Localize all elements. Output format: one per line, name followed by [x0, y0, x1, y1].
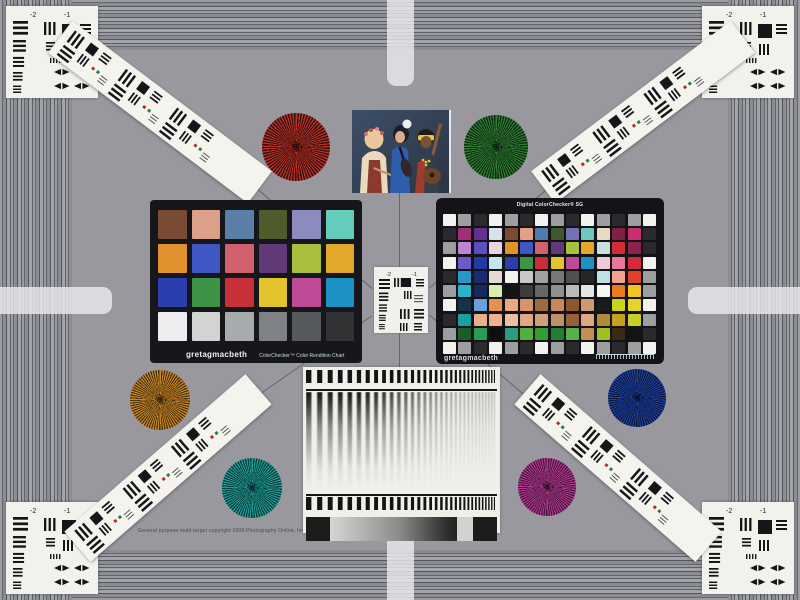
color-patch — [443, 285, 456, 297]
color-patch — [597, 257, 610, 269]
color-patch — [158, 210, 187, 239]
color-patch — [628, 242, 641, 254]
svg-text:-2: -2 — [30, 12, 36, 19]
color-patch — [292, 278, 321, 307]
svg-text:-1: -1 — [760, 508, 766, 515]
color-patch — [192, 278, 221, 307]
color-patch — [643, 242, 656, 254]
siemens-star-green — [464, 115, 528, 179]
colorchecker-classic-grid — [158, 210, 354, 341]
color-patch — [489, 257, 502, 269]
svg-text:-2: -2 — [386, 272, 391, 278]
color-patch — [566, 285, 579, 297]
color-patch — [566, 314, 579, 326]
siemens-star-magenta — [518, 458, 576, 516]
color-patch — [520, 299, 533, 311]
color-patch — [612, 271, 625, 283]
color-patch — [192, 312, 221, 341]
color-patch — [643, 314, 656, 326]
color-patch — [551, 299, 564, 311]
color-patch — [474, 299, 487, 311]
color-patch — [474, 257, 487, 269]
color-patch — [628, 271, 641, 283]
color-patch — [443, 242, 456, 254]
svg-text:-1: -1 — [64, 508, 70, 515]
connector-line-vertical-bottom — [399, 333, 400, 367]
color-patch — [505, 228, 518, 240]
color-patch — [259, 278, 288, 307]
color-patch — [581, 299, 594, 311]
color-patch — [566, 228, 579, 240]
color-patch — [259, 210, 288, 239]
sg-ruler-scale — [596, 354, 654, 359]
color-patch — [225, 312, 254, 341]
color-patch — [566, 271, 579, 283]
color-patch — [643, 299, 656, 311]
color-patch — [443, 328, 456, 340]
color-patch — [643, 214, 656, 226]
color-patch — [505, 214, 518, 226]
color-patch — [158, 278, 187, 307]
sweep-row-top — [306, 370, 495, 383]
black-end-patch — [306, 517, 330, 541]
color-patch — [458, 328, 471, 340]
color-patch — [535, 228, 548, 240]
color-patch — [520, 228, 533, 240]
color-patch — [612, 328, 625, 340]
sweep-fade-down — [306, 392, 497, 493]
color-patch — [458, 228, 471, 240]
color-patch — [612, 299, 625, 311]
classic-brand-text: gretagmacbeth — [186, 350, 247, 359]
color-patch — [643, 271, 656, 283]
color-patch — [643, 328, 656, 340]
color-patch — [566, 242, 579, 254]
color-patch — [566, 214, 579, 226]
color-patch — [489, 328, 502, 340]
colorchecker-classic-chart: gretagmacbeth ColorChecker™ Color Rendit… — [150, 200, 362, 363]
portrait-photo — [352, 110, 451, 193]
color-patch — [612, 314, 625, 326]
color-patch — [597, 271, 610, 283]
color-patch — [489, 342, 502, 354]
color-patch — [612, 285, 625, 297]
color-patch — [597, 228, 610, 240]
colorchecker-sg-grid — [443, 214, 656, 354]
color-patch — [566, 342, 579, 354]
color-patch — [628, 285, 641, 297]
color-patch — [612, 242, 625, 254]
color-patch — [581, 242, 594, 254]
color-patch — [474, 214, 487, 226]
sweep-row-bottom — [306, 497, 495, 510]
color-patch — [192, 210, 221, 239]
color-patch — [597, 285, 610, 297]
color-patch — [551, 242, 564, 254]
siemens-star-amber — [130, 370, 190, 430]
color-patch — [535, 242, 548, 254]
color-patch — [292, 244, 321, 273]
test-chart-stage: -2-1 -2-1 -2-1 -2-1 — [0, 0, 800, 600]
sweep-fade-area — [306, 392, 497, 493]
color-patch — [581, 285, 594, 297]
color-patch — [489, 271, 502, 283]
color-patch — [158, 312, 187, 341]
color-patch — [225, 244, 254, 273]
color-patch — [535, 328, 548, 340]
svg-text:-2: -2 — [726, 508, 732, 515]
color-patch — [566, 299, 579, 311]
color-patch — [326, 278, 355, 307]
color-patch — [643, 342, 656, 354]
grayscale-gradient-strip — [306, 517, 497, 541]
color-patch — [628, 257, 641, 269]
color-patch — [474, 271, 487, 283]
color-patch — [535, 299, 548, 311]
color-patch — [628, 214, 641, 226]
color-patch — [443, 314, 456, 326]
color-patch — [458, 342, 471, 354]
color-patch — [551, 328, 564, 340]
color-patch — [505, 271, 518, 283]
color-patch — [581, 342, 594, 354]
color-patch — [581, 314, 594, 326]
color-patch — [192, 244, 221, 273]
color-patch — [520, 257, 533, 269]
color-patch — [489, 242, 502, 254]
color-patch — [628, 328, 641, 340]
color-patch — [505, 328, 518, 340]
edge-marker-top — [387, 0, 414, 86]
color-patch — [520, 214, 533, 226]
color-patch — [643, 228, 656, 240]
color-patch — [225, 210, 254, 239]
color-patch — [581, 271, 594, 283]
edge-marker-left — [0, 287, 112, 314]
color-patch — [292, 312, 321, 341]
color-patch — [443, 299, 456, 311]
color-patch — [326, 244, 355, 273]
color-patch — [535, 314, 548, 326]
color-patch — [551, 271, 564, 283]
colorchecker-sg-chart: Digital ColorChecker® SG gretagmacbeth — [436, 198, 664, 364]
svg-text:-1: -1 — [412, 272, 417, 278]
color-patch — [292, 210, 321, 239]
copyright-text: General purpose multi-target copyright 2… — [138, 528, 306, 534]
color-patch — [489, 314, 502, 326]
gray-ramp — [330, 517, 457, 541]
color-patch — [566, 257, 579, 269]
color-patch — [225, 278, 254, 307]
color-patch — [520, 314, 533, 326]
center-usaf-target: -2-1 — [374, 267, 428, 333]
color-patch — [489, 285, 502, 297]
color-patch — [612, 257, 625, 269]
color-patch — [566, 328, 579, 340]
color-patch — [597, 242, 610, 254]
color-patch — [597, 214, 610, 226]
color-patch — [326, 312, 355, 341]
sg-title-text: Digital ColorChecker® SG — [436, 202, 664, 208]
color-patch — [597, 299, 610, 311]
color-patch — [612, 214, 625, 226]
color-patch — [597, 328, 610, 340]
color-patch — [535, 342, 548, 354]
color-patch — [597, 342, 610, 354]
color-patch — [643, 257, 656, 269]
color-patch — [612, 342, 625, 354]
color-patch — [505, 242, 518, 254]
color-patch — [474, 285, 487, 297]
color-patch — [643, 285, 656, 297]
color-patch — [520, 242, 533, 254]
color-patch — [505, 314, 518, 326]
edge-marker-right — [688, 287, 800, 314]
color-patch — [551, 285, 564, 297]
color-patch — [628, 342, 641, 354]
color-patch — [489, 228, 502, 240]
color-patch — [259, 244, 288, 273]
color-patch — [158, 244, 187, 273]
color-patch — [581, 257, 594, 269]
panel-divider-line — [306, 494, 497, 496]
color-patch — [628, 299, 641, 311]
siemens-star-blue — [608, 369, 666, 427]
color-patch — [535, 285, 548, 297]
color-patch — [443, 228, 456, 240]
color-patch — [259, 312, 288, 341]
color-patch — [474, 342, 487, 354]
color-patch — [551, 257, 564, 269]
corner-usaf-target-bottom-right: -2-1 — [702, 502, 794, 594]
colorchecker-classic-label: gretagmacbeth ColorChecker™ Color Rendit… — [186, 350, 344, 359]
light-patch — [457, 517, 473, 541]
color-patch — [581, 214, 594, 226]
color-patch — [535, 257, 548, 269]
color-patch — [458, 285, 471, 297]
color-patch — [535, 214, 548, 226]
color-patch — [520, 328, 533, 340]
color-patch — [551, 214, 564, 226]
svg-text:-2: -2 — [726, 12, 732, 19]
color-patch — [551, 342, 564, 354]
color-patch — [551, 314, 564, 326]
color-patch — [520, 285, 533, 297]
color-patch — [612, 228, 625, 240]
color-patch — [326, 210, 355, 239]
color-patch — [505, 257, 518, 269]
black-end-patch — [473, 517, 497, 541]
color-patch — [551, 228, 564, 240]
color-patch — [581, 228, 594, 240]
classic-title-text: ColorChecker™ Color Rendition Chart — [259, 353, 344, 359]
color-patch — [443, 214, 456, 226]
color-patch — [489, 299, 502, 311]
color-patch — [458, 257, 471, 269]
siemens-star-teal — [222, 458, 282, 518]
color-patch — [458, 314, 471, 326]
color-patch — [474, 328, 487, 340]
color-patch — [628, 228, 641, 240]
color-patch — [520, 342, 533, 354]
color-patch — [443, 257, 456, 269]
frequency-sweep-panel — [303, 367, 500, 533]
color-patch — [505, 342, 518, 354]
svg-text:-1: -1 — [64, 12, 70, 19]
color-patch — [489, 214, 502, 226]
siemens-star-red — [262, 113, 330, 181]
svg-text:-1: -1 — [760, 12, 766, 19]
color-patch — [520, 271, 533, 283]
color-patch — [443, 271, 456, 283]
color-patch — [505, 299, 518, 311]
color-patch — [458, 271, 471, 283]
color-patch — [535, 271, 548, 283]
color-patch — [458, 214, 471, 226]
color-patch — [474, 242, 487, 254]
color-patch — [458, 242, 471, 254]
svg-text:-2: -2 — [30, 508, 36, 515]
color-patch — [505, 285, 518, 297]
color-patch — [474, 314, 487, 326]
sg-brand-text: gretagmacbeth — [444, 355, 498, 362]
color-patch — [628, 314, 641, 326]
color-patch — [458, 299, 471, 311]
color-patch — [443, 342, 456, 354]
connector-line-vertical-top — [399, 193, 400, 267]
color-patch — [597, 314, 610, 326]
color-patch — [581, 328, 594, 340]
panel-divider-line — [306, 389, 497, 391]
color-patch — [474, 228, 487, 240]
